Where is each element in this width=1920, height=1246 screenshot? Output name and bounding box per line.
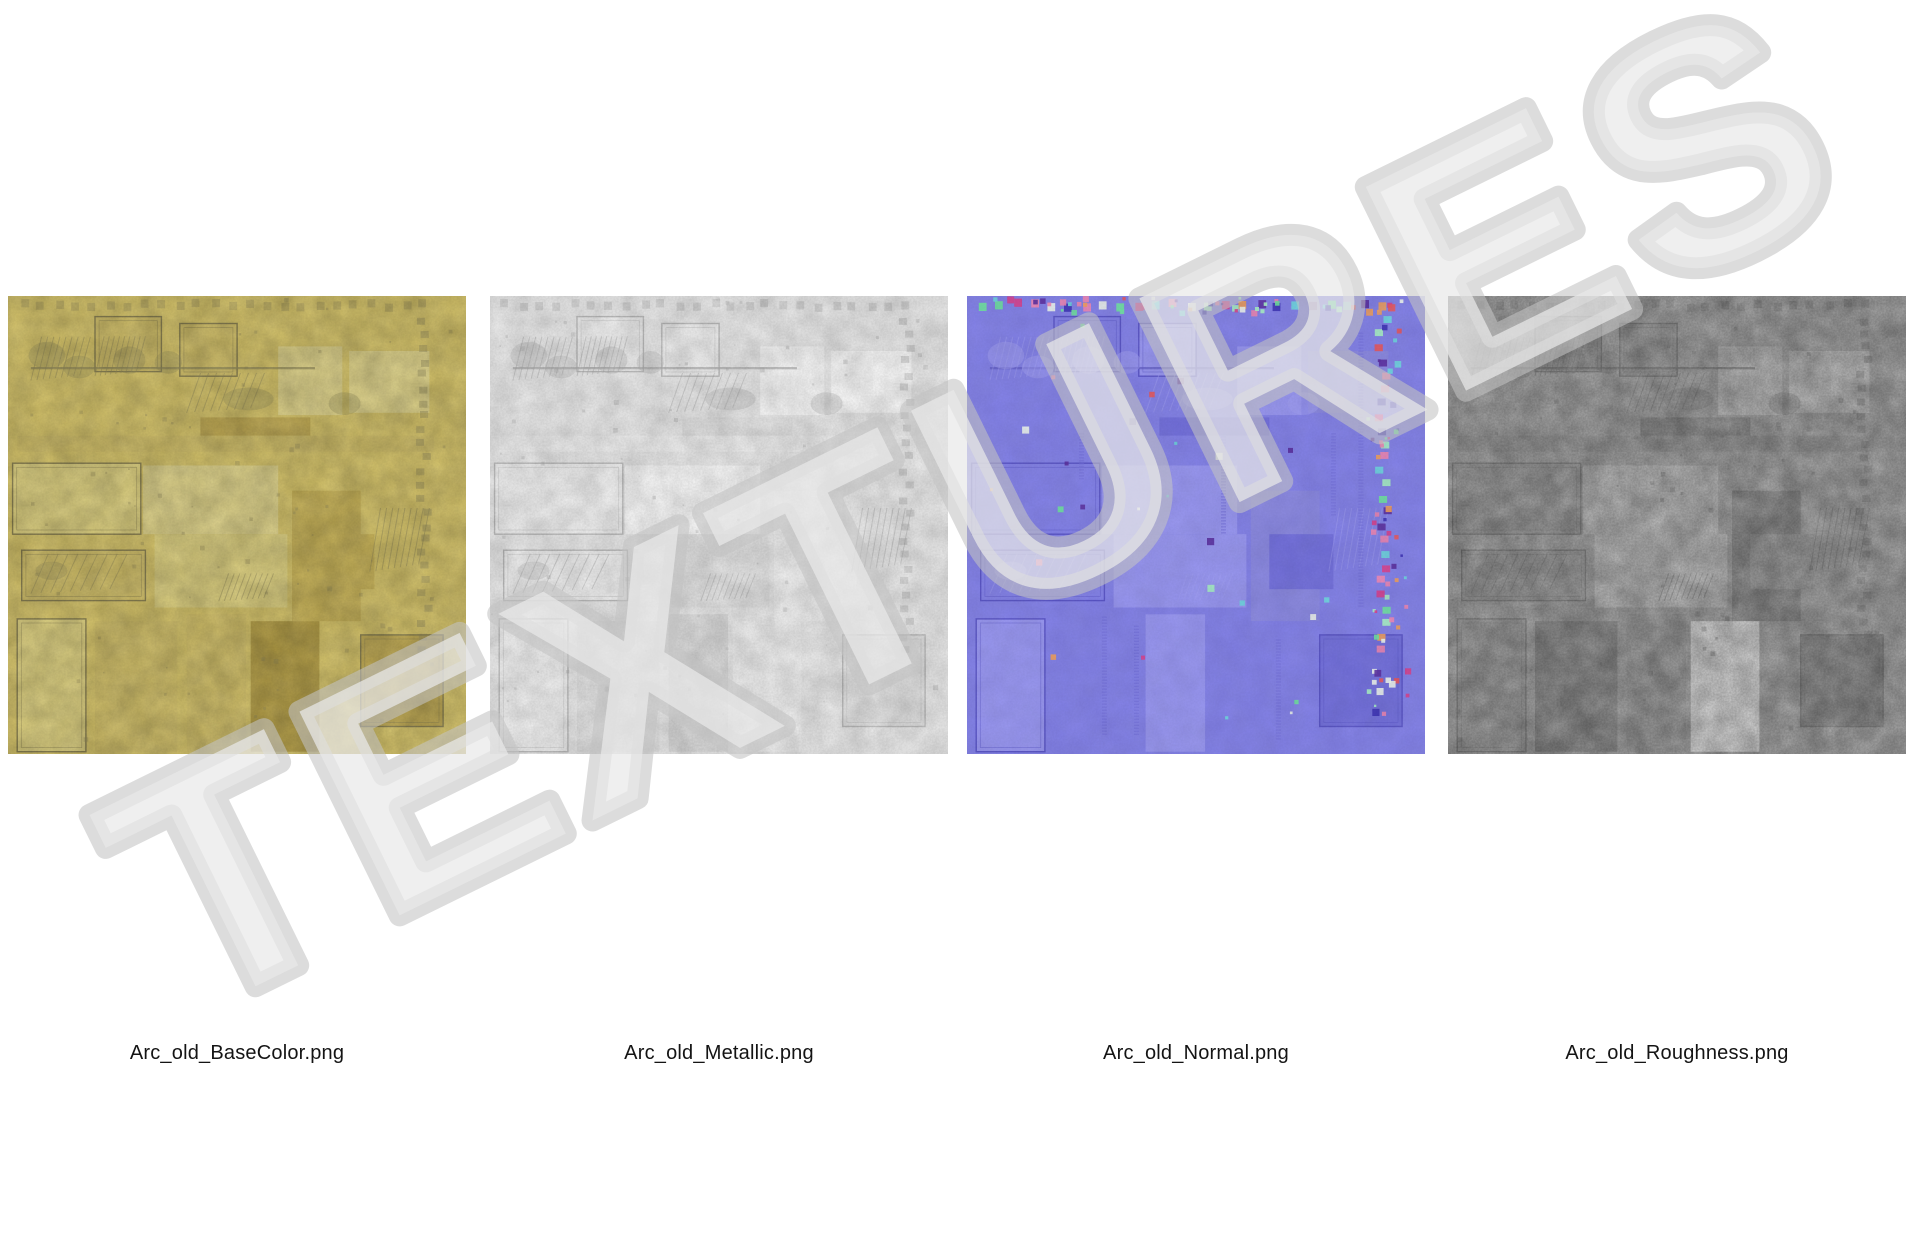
basecolor-map-image	[8, 296, 466, 754]
filename-roughness: Arc_old_Roughness.png	[1565, 1042, 1788, 1065]
texture-preview-basecolor	[8, 296, 466, 754]
texture-preview-normal	[967, 296, 1425, 754]
texture-sheet-page: { "watermark": { "text": "TEXTURES", "fi…	[0, 0, 1920, 1080]
texture-preview-roughness	[1448, 296, 1906, 754]
texture-preview-metallic	[490, 296, 948, 754]
normal-map-image	[967, 296, 1425, 754]
filename-normal: Arc_old_Normal.png	[1103, 1042, 1289, 1065]
metallic-map-image	[490, 296, 948, 754]
texture-preview-sheet: TEXTURES Arc_old_BaseColor.png Arc_old_M…	[0, 0, 1920, 1080]
filename-basecolor: Arc_old_BaseColor.png	[130, 1042, 344, 1065]
roughness-map-image	[1448, 296, 1906, 754]
filename-metallic: Arc_old_Metallic.png	[624, 1042, 814, 1065]
